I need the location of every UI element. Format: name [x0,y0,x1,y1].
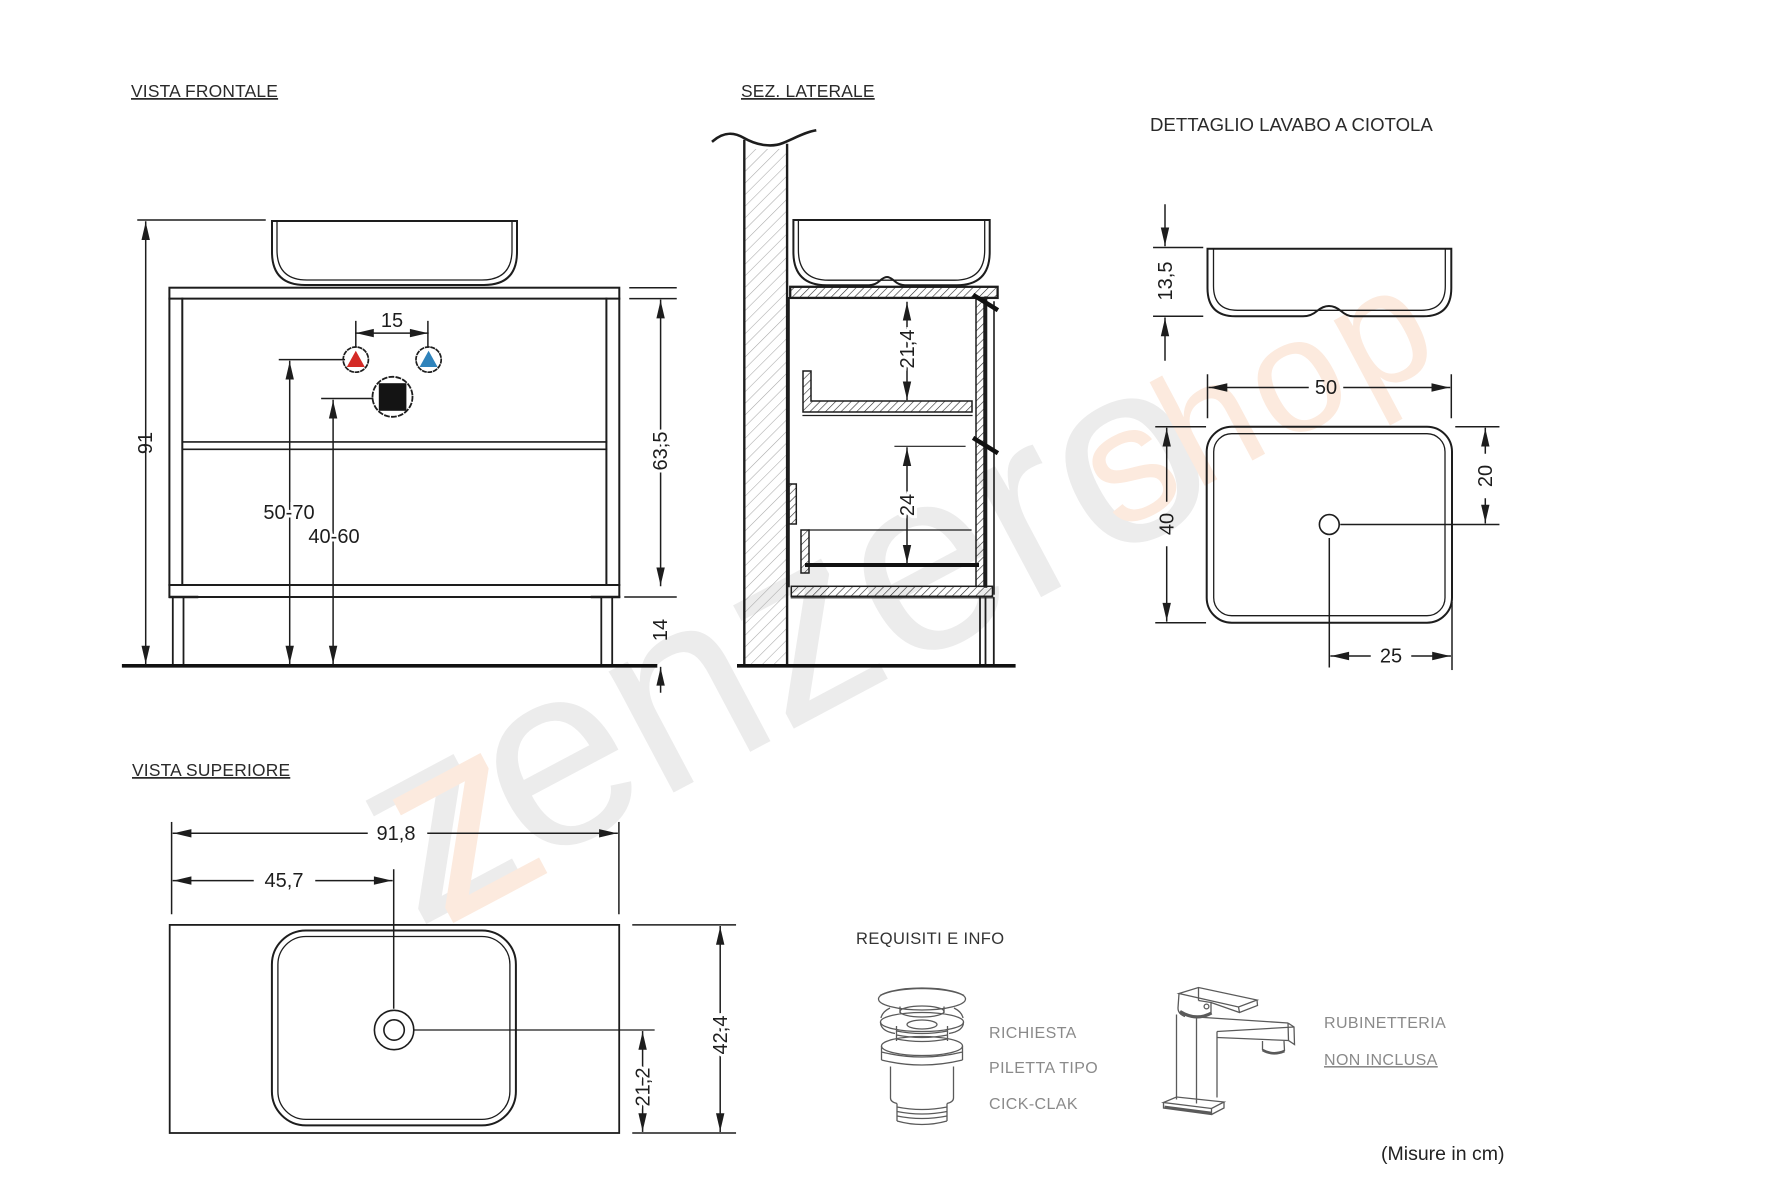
svg-text:14: 14 [650,619,672,641]
svg-text:21,2: 21,2 [633,1068,655,1107]
svg-text:21,4: 21,4 [897,330,919,369]
svg-text:SEZ. LATERALE: SEZ. LATERALE [741,81,875,101]
svg-text:13,5: 13,5 [1155,262,1177,301]
svg-text:50: 50 [1315,377,1337,399]
svg-text:15: 15 [381,310,403,332]
svg-text:91,8: 91,8 [377,823,416,845]
svg-text:40-60: 40-60 [308,526,359,548]
svg-text:24: 24 [897,494,919,516]
svg-text:50-70: 50-70 [263,502,314,524]
svg-text:(Misure in cm): (Misure in cm) [1381,1143,1505,1165]
svg-text:40: 40 [1157,513,1179,535]
svg-text:DETTAGLIO LAVABO A CIOTOLA: DETTAGLIO LAVABO A CIOTOLA [1150,114,1433,135]
svg-text:VISTA SUPERIORE: VISTA SUPERIORE [132,760,290,780]
svg-text:CICK-CLAK: CICK-CLAK [989,1096,1078,1113]
svg-text:20: 20 [1475,465,1497,487]
svg-text:VISTA FRONTALE: VISTA FRONTALE [131,81,278,101]
svg-text:PILETTA TIPO: PILETTA TIPO [989,1060,1098,1077]
svg-text:45,7: 45,7 [265,870,304,892]
svg-text:25: 25 [1380,646,1402,668]
svg-text:63,5: 63,5 [650,432,672,471]
svg-text:REQUISITI E INFO: REQUISITI E INFO [856,930,1005,948]
svg-text:NON INCLUSA: NON INCLUSA [1324,1052,1438,1069]
svg-text:RUBINETTERIA: RUBINETTERIA [1324,1015,1446,1032]
svg-text:42,4: 42,4 [710,1016,732,1055]
svg-text:RICHIESTA: RICHIESTA [989,1025,1077,1042]
svg-text:91: 91 [135,432,157,454]
